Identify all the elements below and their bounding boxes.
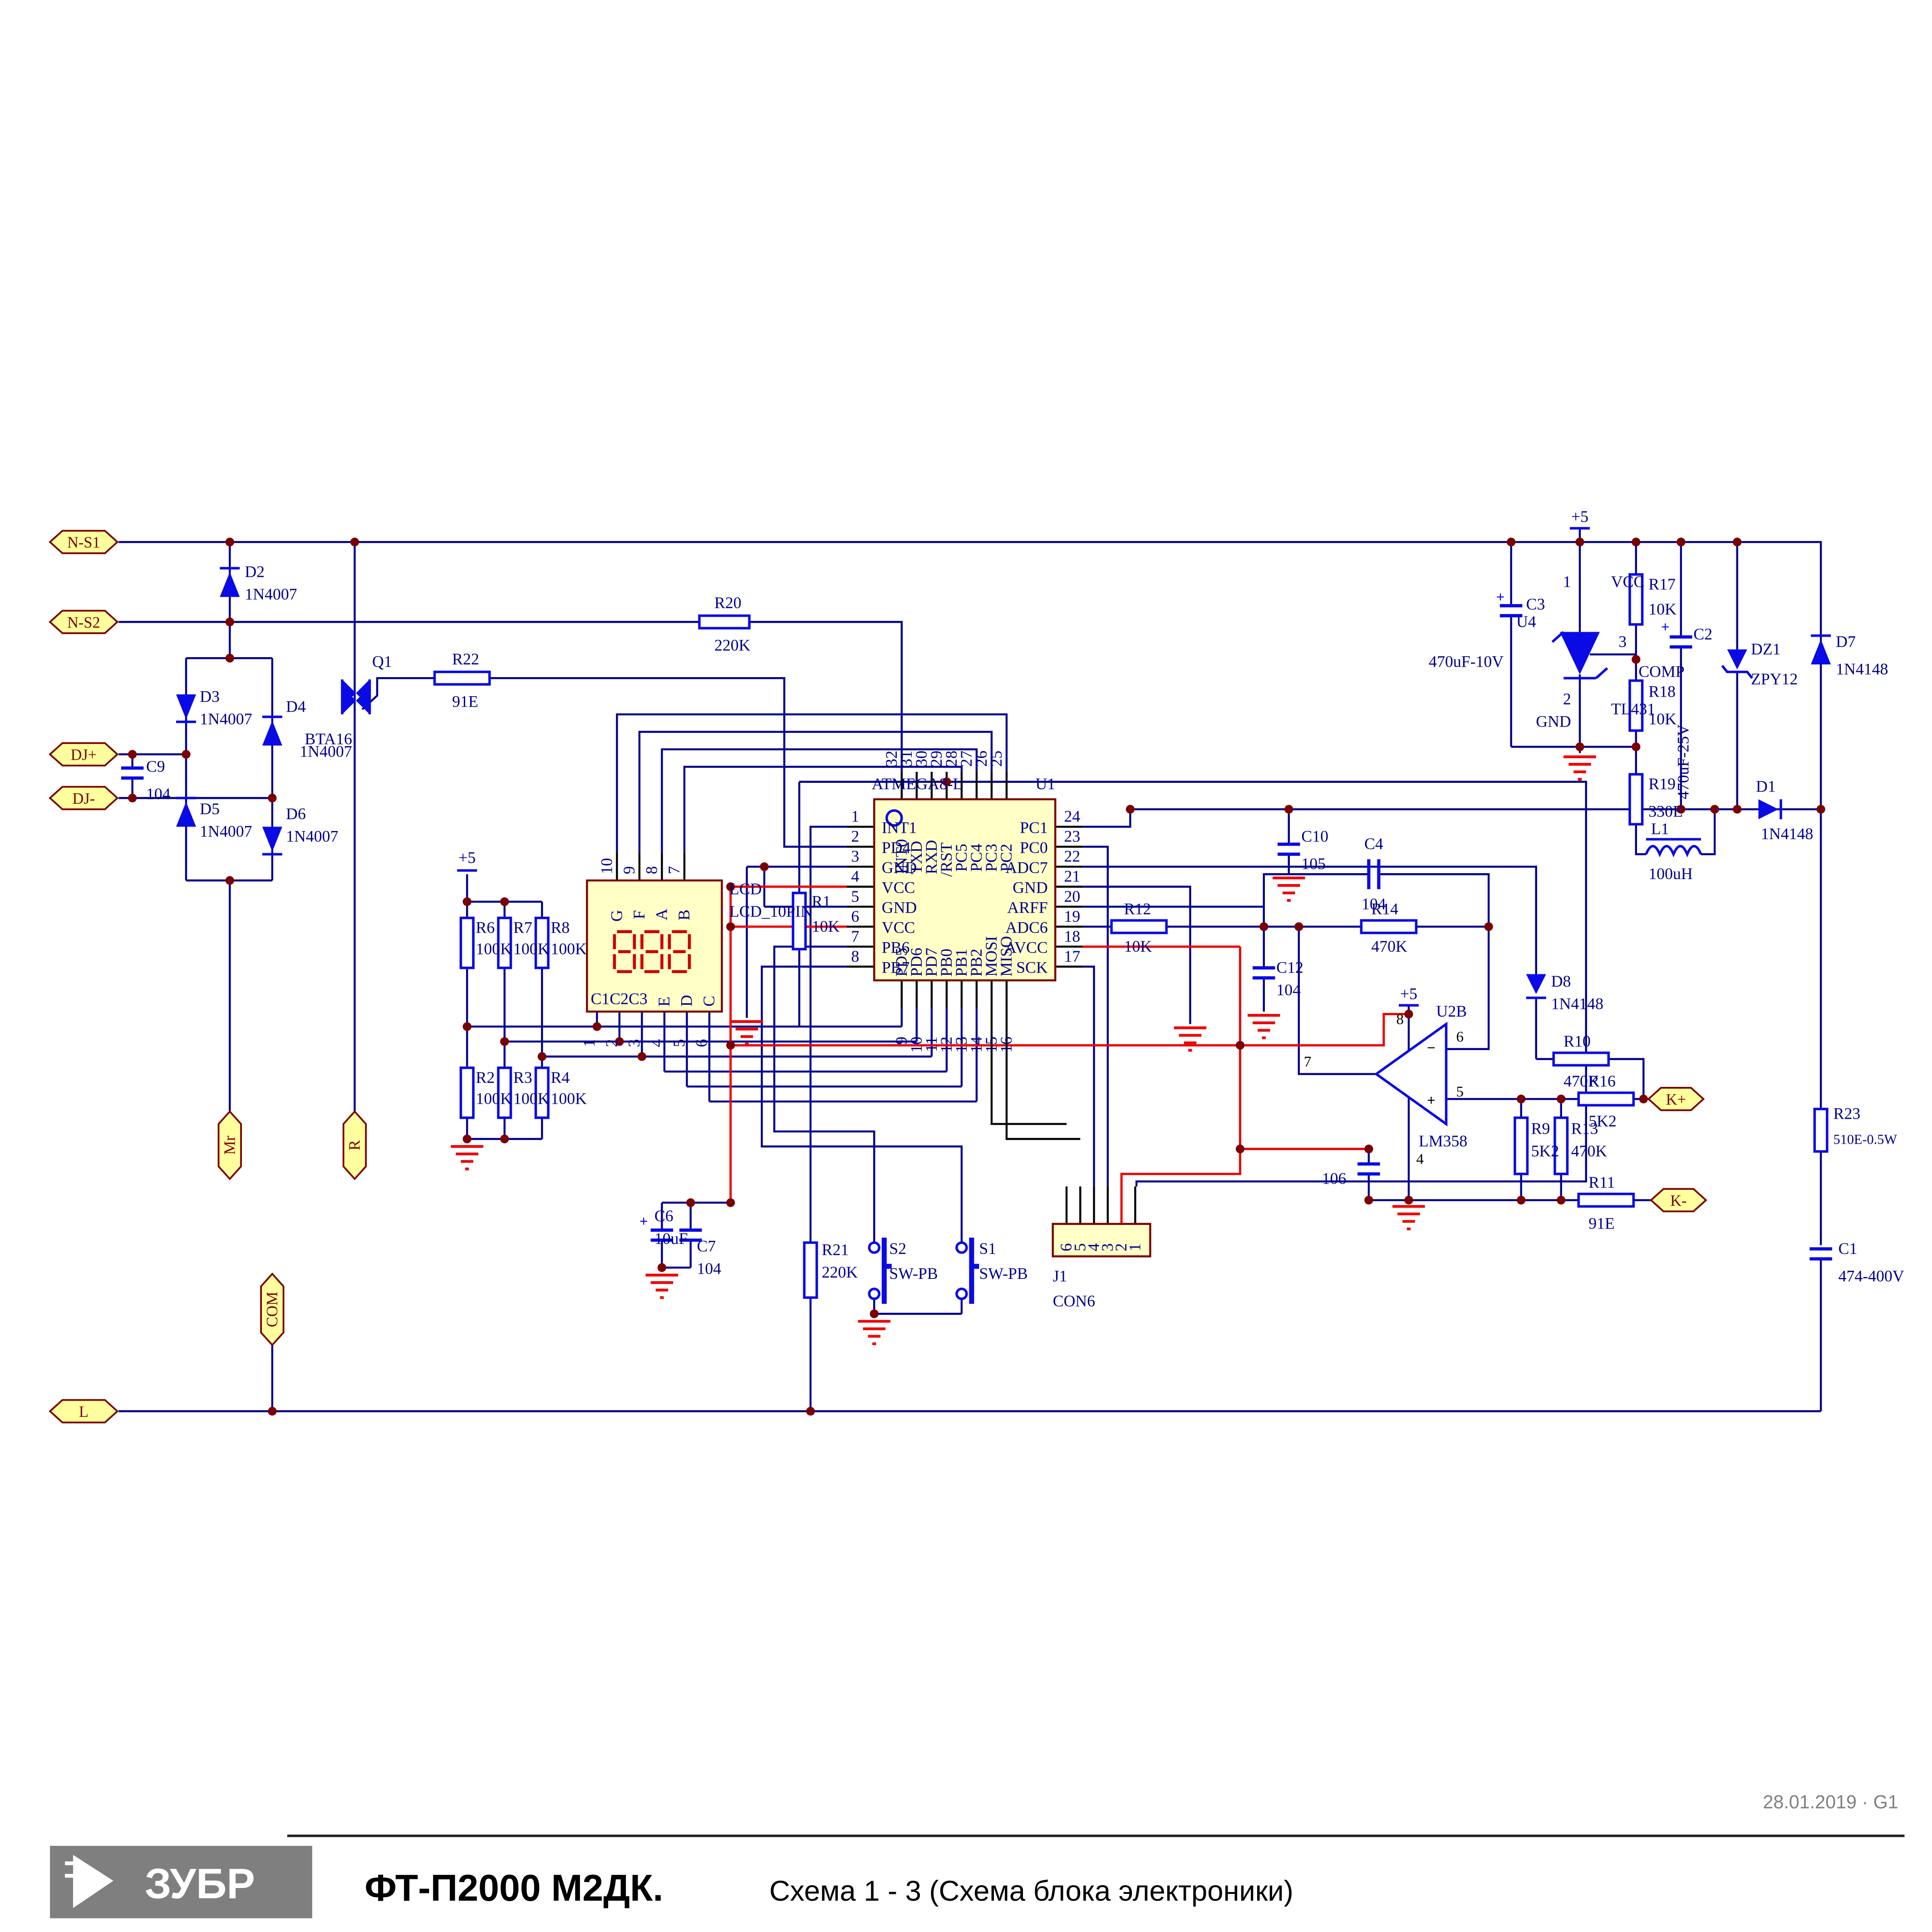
svg-text:18: 18 <box>1064 927 1081 945</box>
svg-text:GND: GND <box>882 899 917 917</box>
svg-text:Mr: Mr <box>221 1136 238 1155</box>
flag-com: COM <box>261 1274 284 1345</box>
svg-text:R12: R12 <box>1124 900 1151 918</box>
svg-text:PC1: PC1 <box>1020 818 1048 836</box>
svg-text:SW-PB: SW-PB <box>979 1264 1027 1283</box>
svg-text:100K: 100K <box>551 1090 587 1108</box>
svg-text:25: 25 <box>987 751 1005 767</box>
svg-text:100K: 100K <box>513 1090 550 1108</box>
p5-flag-2: +5 <box>1571 507 1588 526</box>
svg-text:5K2: 5K2 <box>1531 1142 1559 1160</box>
svg-text:GND: GND <box>1013 879 1048 897</box>
svg-text:1N4007: 1N4007 <box>245 585 297 603</box>
svg-text:C: C <box>700 996 718 1007</box>
svg-text:E: E <box>655 997 673 1007</box>
svg-text:10: 10 <box>597 858 615 874</box>
svg-text:C6: C6 <box>654 1207 673 1225</box>
svg-text:R13: R13 <box>1571 1120 1598 1138</box>
svg-text:R16: R16 <box>1588 1072 1616 1090</box>
svg-text:104: 104 <box>1276 981 1301 999</box>
j1-body <box>1053 1224 1150 1257</box>
svg-text:3: 3 <box>625 1039 643 1047</box>
svg-text:Q1: Q1 <box>372 652 392 670</box>
svg-text:LCD_10PIN: LCD_10PIN <box>729 902 812 920</box>
svg-text:10K: 10K <box>1648 600 1676 618</box>
svg-text:F: F <box>630 910 648 919</box>
flag-mr: Mr <box>219 1111 241 1179</box>
svg-text:GND: GND <box>1536 713 1571 731</box>
svg-text:INT1: INT1 <box>882 818 917 836</box>
svg-text:D3: D3 <box>200 687 220 705</box>
svg-text:SCK: SCK <box>1016 959 1048 977</box>
svg-text:4: 4 <box>851 867 859 885</box>
svg-text:8: 8 <box>851 947 859 965</box>
svg-text:C1: C1 <box>1839 1239 1858 1258</box>
logo-text: ЗУБР <box>145 1860 255 1907</box>
svg-text:ADC6: ADC6 <box>1005 919 1047 937</box>
svg-text:+: + <box>639 1214 648 1230</box>
svg-text:R23: R23 <box>1834 1105 1861 1123</box>
svg-text:SW-PB: SW-PB <box>889 1264 938 1283</box>
svg-text:106: 106 <box>1322 1170 1347 1188</box>
svg-text:R3: R3 <box>513 1068 532 1086</box>
svg-text:+: + <box>1427 1092 1435 1109</box>
svg-text:N-S2: N-S2 <box>67 614 100 631</box>
svg-text:A: A <box>652 909 670 920</box>
svg-text:D6: D6 <box>286 805 306 823</box>
svg-text:9: 9 <box>620 866 638 874</box>
svg-text:G: G <box>607 910 625 922</box>
svg-text:BTA16: BTA16 <box>305 730 352 748</box>
svg-text:7: 7 <box>1304 1054 1312 1070</box>
svg-text:LM358: LM358 <box>1419 1132 1467 1150</box>
svg-text:23: 23 <box>1064 827 1081 846</box>
svg-text:8: 8 <box>642 866 660 874</box>
svg-text:100K: 100K <box>551 939 587 958</box>
svg-text:470uF-25V: 470uF-25V <box>1674 724 1692 799</box>
flag-r: R <box>344 1111 366 1179</box>
svg-text:D2: D2 <box>245 562 265 580</box>
svg-text:R20: R20 <box>714 594 742 612</box>
svg-text:R9: R9 <box>1531 1120 1550 1138</box>
svg-text:COMP: COMP <box>1638 662 1684 680</box>
svg-text:R7: R7 <box>513 919 532 937</box>
page-title: ФТ-П2000 М2ДК. <box>365 1867 664 1909</box>
svg-text:TL431: TL431 <box>1611 700 1655 718</box>
svg-text:R21: R21 <box>822 1241 849 1259</box>
svg-text:5: 5 <box>670 1039 688 1047</box>
svg-text:LCD: LCD <box>729 880 762 898</box>
svg-text:B: B <box>675 909 693 920</box>
svg-text:C2: C2 <box>1693 625 1712 643</box>
svg-text:19: 19 <box>1064 907 1081 925</box>
svg-text:−: − <box>1427 1040 1435 1057</box>
svg-text:C10: C10 <box>1301 827 1328 846</box>
svg-text:474-400V: 474-400V <box>1839 1267 1904 1285</box>
svg-text:S1: S1 <box>979 1239 996 1258</box>
svg-text:1: 1 <box>1126 1243 1144 1251</box>
svg-text:10K: 10K <box>812 917 840 935</box>
svg-text:4: 4 <box>647 1039 665 1047</box>
svg-text:U1: U1 <box>1036 775 1056 793</box>
svg-text:R6: R6 <box>476 919 495 937</box>
svg-text:C1C2C3: C1C2C3 <box>591 989 648 1008</box>
svg-text:U4: U4 <box>1516 612 1536 630</box>
svg-text:L: L <box>79 1403 88 1421</box>
svg-text:1: 1 <box>851 807 859 826</box>
svg-text:DJ+: DJ+ <box>71 746 97 763</box>
svg-text:105: 105 <box>1301 855 1326 873</box>
svg-text:2: 2 <box>851 827 859 846</box>
svg-text:R10: R10 <box>1563 1032 1591 1050</box>
svg-text:DZ1: DZ1 <box>1751 640 1781 658</box>
schematic-page: − + + + + <box>0 0 1932 1932</box>
svg-text:100K: 100K <box>476 1090 512 1108</box>
svg-text:U2B: U2B <box>1436 1002 1467 1020</box>
svg-text:20: 20 <box>1064 887 1081 905</box>
svg-text:6: 6 <box>693 1039 711 1047</box>
svg-text:ARFF: ARFF <box>1007 899 1047 917</box>
svg-text:D1: D1 <box>1756 777 1776 796</box>
svg-text:6: 6 <box>1456 1029 1464 1045</box>
title-block: 28.01.2019 · G1 ЗУБР ФТ-П2000 М2ДК. Схем… <box>50 1792 1904 1918</box>
svg-text:5: 5 <box>851 887 859 905</box>
svg-text:6: 6 <box>851 907 859 925</box>
svg-text:100K: 100K <box>476 939 512 958</box>
svg-text:N-S1: N-S1 <box>67 534 100 551</box>
svg-text:R: R <box>346 1140 364 1150</box>
svg-text:R22: R22 <box>452 650 479 668</box>
svg-text:1N4007: 1N4007 <box>200 822 252 841</box>
svg-text:VCC: VCC <box>882 919 915 937</box>
svg-text:+: + <box>1661 619 1670 635</box>
schematic-canvas: − + + + + <box>0 0 1932 1932</box>
svg-text:1: 1 <box>580 1039 598 1047</box>
svg-text:220K: 220K <box>714 636 751 654</box>
svg-text:16: 16 <box>997 1037 1015 1053</box>
svg-text:K-: K- <box>1670 1192 1686 1209</box>
flag-djm: DJ- <box>50 787 118 810</box>
svg-text:COM: COM <box>264 1292 281 1327</box>
svg-text:PD4: PD4 <box>882 838 911 856</box>
svg-text:22: 22 <box>1064 847 1081 865</box>
svg-text:K+: K+ <box>1666 1091 1686 1108</box>
svg-text:2: 2 <box>602 1039 620 1047</box>
svg-text:R1: R1 <box>812 892 831 910</box>
date-revision: 28.01.2019 · G1 <box>1763 1792 1898 1813</box>
svg-text:VCC: VCC <box>882 879 915 897</box>
svg-text:1N4148: 1N4148 <box>1836 660 1888 678</box>
svg-text:3: 3 <box>851 847 859 865</box>
svg-text:24: 24 <box>1064 807 1081 826</box>
flag-ns1: N-S1 <box>50 531 118 554</box>
svg-text:J1: J1 <box>1053 1267 1067 1285</box>
svg-text:100K: 100K <box>513 939 550 958</box>
page-subtitle: Схема 1 - 3 (Схема блока электроники) <box>769 1875 1293 1907</box>
svg-text:R14: R14 <box>1371 900 1398 918</box>
svg-text:D7: D7 <box>1836 632 1856 650</box>
svg-text:R2: R2 <box>476 1068 495 1086</box>
svg-text:3: 3 <box>1618 632 1627 650</box>
svg-text:21: 21 <box>1064 867 1081 885</box>
svg-text:R4: R4 <box>551 1068 570 1086</box>
svg-text:7: 7 <box>665 866 683 874</box>
svg-text:S2: S2 <box>889 1239 906 1258</box>
svg-text:1N4148: 1N4148 <box>1551 994 1603 1013</box>
svg-text:104: 104 <box>697 1259 721 1278</box>
svg-text:470K: 470K <box>1571 1142 1608 1160</box>
svg-text:R8: R8 <box>551 919 570 937</box>
svg-text:+: + <box>1496 589 1505 605</box>
svg-text:L1: L1 <box>1651 820 1669 838</box>
svg-text:D: D <box>677 995 695 1007</box>
svg-text:510E-0.5W: 510E-0.5W <box>1834 1132 1898 1147</box>
svg-text:7: 7 <box>851 927 859 945</box>
svg-text:100uH: 100uH <box>1648 865 1692 883</box>
svg-text:R17: R17 <box>1648 575 1676 593</box>
svg-text:D5: D5 <box>200 800 220 818</box>
svg-text:R11: R11 <box>1588 1173 1615 1191</box>
svg-text:104: 104 <box>146 785 171 803</box>
svg-text:1N4007: 1N4007 <box>200 710 252 728</box>
svg-text:470K: 470K <box>1371 937 1407 955</box>
svg-text:GND: GND <box>882 858 917 876</box>
svg-text:220K: 220K <box>822 1263 858 1281</box>
svg-text:5: 5 <box>1456 1084 1464 1100</box>
j1-pins: 6 5 4 3 2 1 <box>1057 1243 1144 1251</box>
svg-text:4: 4 <box>1416 1151 1424 1168</box>
svg-text:ADC7: ADC7 <box>1005 858 1047 876</box>
flag-ns2: N-S2 <box>50 611 118 634</box>
p5-flag-3: +5 <box>1400 984 1417 1003</box>
svg-text:C12: C12 <box>1276 959 1303 977</box>
svg-text:C7: C7 <box>697 1237 716 1255</box>
svg-text:C9: C9 <box>146 757 165 776</box>
svg-text:D8: D8 <box>1551 972 1571 990</box>
svg-text:17: 17 <box>1064 947 1081 965</box>
svg-text:1: 1 <box>1563 572 1571 590</box>
svg-text:C4: C4 <box>1364 835 1383 853</box>
svg-text:8: 8 <box>1396 1011 1404 1027</box>
svg-text:C3: C3 <box>1526 595 1545 613</box>
svg-text:DJ-: DJ- <box>73 790 95 807</box>
svg-text:MISO: MISO <box>997 936 1015 976</box>
svg-text:91E: 91E <box>1588 1214 1615 1233</box>
flag-l: L <box>50 1400 118 1423</box>
svg-text:10K: 10K <box>1124 937 1152 955</box>
svg-text:VCC: VCC <box>1611 572 1645 590</box>
flag-km: K- <box>1651 1189 1706 1212</box>
svg-text:330E: 330E <box>1648 802 1682 821</box>
svg-text:1N4148: 1N4148 <box>1761 825 1813 843</box>
svg-text:D4: D4 <box>286 698 306 716</box>
flag-kp: K+ <box>1648 1088 1703 1111</box>
svg-text:ATMEGA8-L: ATMEGA8-L <box>872 775 963 793</box>
svg-text:PC0: PC0 <box>1020 838 1048 856</box>
svg-text:CON6: CON6 <box>1053 1292 1095 1310</box>
p5-flag-1: +5 <box>458 848 476 866</box>
svg-text:91E: 91E <box>452 693 478 711</box>
svg-text:470uF-10V: 470uF-10V <box>1429 652 1504 670</box>
svg-text:R18: R18 <box>1648 682 1676 700</box>
flag-djp: DJ+ <box>50 743 118 766</box>
svg-text:ZPY12: ZPY12 <box>1751 670 1798 688</box>
svg-text:1N4007: 1N4007 <box>286 827 338 846</box>
svg-text:10uF: 10uF <box>654 1229 688 1248</box>
svg-text:R19: R19 <box>1648 775 1676 793</box>
svg-text:2: 2 <box>1563 690 1571 708</box>
